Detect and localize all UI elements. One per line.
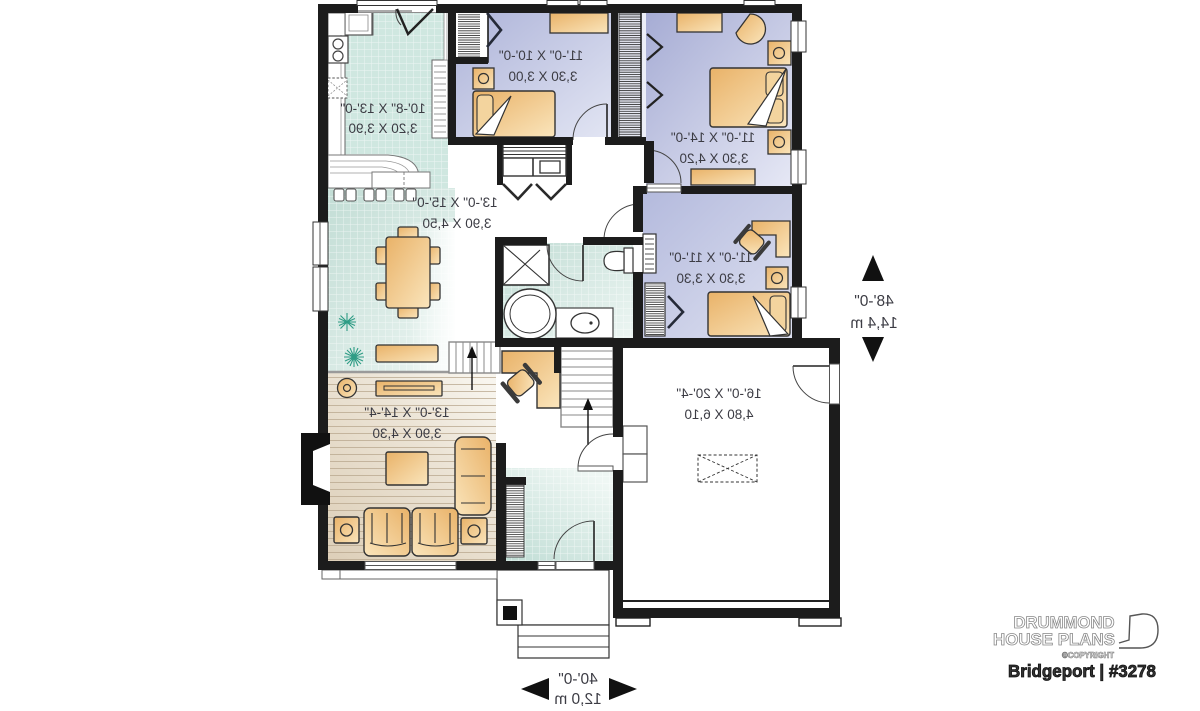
svg-text:3,30 X 4,20: 3,30 X 4,20 bbox=[679, 151, 748, 166]
svg-text:12,0 m: 12,0 m bbox=[554, 691, 601, 708]
svg-text:©COPYRIGHT: ©COPYRIGHT bbox=[1062, 651, 1114, 660]
svg-text:11'-0" X 14'-0": 11'-0" X 14'-0" bbox=[671, 130, 755, 145]
svg-text:40'-0": 40'-0" bbox=[558, 671, 597, 688]
svg-text:Bridgeport | #3278: Bridgeport | #3278 bbox=[1008, 661, 1156, 681]
svg-text:16'-0" X 20'-4": 16'-0" X 20'-4" bbox=[676, 386, 761, 401]
svg-text:11'-0" X 10'-0": 11'-0" X 10'-0" bbox=[499, 48, 583, 63]
svg-text:DRUMMOND: DRUMMOND bbox=[1014, 614, 1115, 632]
svg-text:3,30 X 3,00: 3,30 X 3,00 bbox=[508, 69, 577, 84]
svg-text:13'-0" X 15'-0": 13'-0" X 15'-0" bbox=[412, 195, 497, 210]
svg-text:3,90 X 4,30: 3,90 X 4,30 bbox=[372, 426, 441, 441]
svg-text:4,80 X 6,10: 4,80 X 6,10 bbox=[684, 407, 753, 422]
svg-text:10'-8" X 13'-0": 10'-8" X 13'-0" bbox=[340, 101, 425, 116]
svg-text:14,4 m: 14,4 m bbox=[850, 315, 897, 332]
svg-text:3,30 X 3,30: 3,30 X 3,30 bbox=[676, 271, 745, 286]
svg-text:HOUSE PLANS: HOUSE PLANS bbox=[993, 631, 1115, 649]
svg-text:11'-0" X 11'-0": 11'-0" X 11'-0" bbox=[669, 250, 752, 265]
svg-text:3,20 X 3,90: 3,20 X 3,90 bbox=[348, 121, 417, 136]
svg-text:13'-0" X 14'-4": 13'-0" X 14'-4" bbox=[364, 405, 449, 420]
svg-text:3,90 X 4,50: 3,90 X 4,50 bbox=[422, 216, 491, 231]
svg-text:48'-0": 48'-0" bbox=[854, 293, 893, 310]
